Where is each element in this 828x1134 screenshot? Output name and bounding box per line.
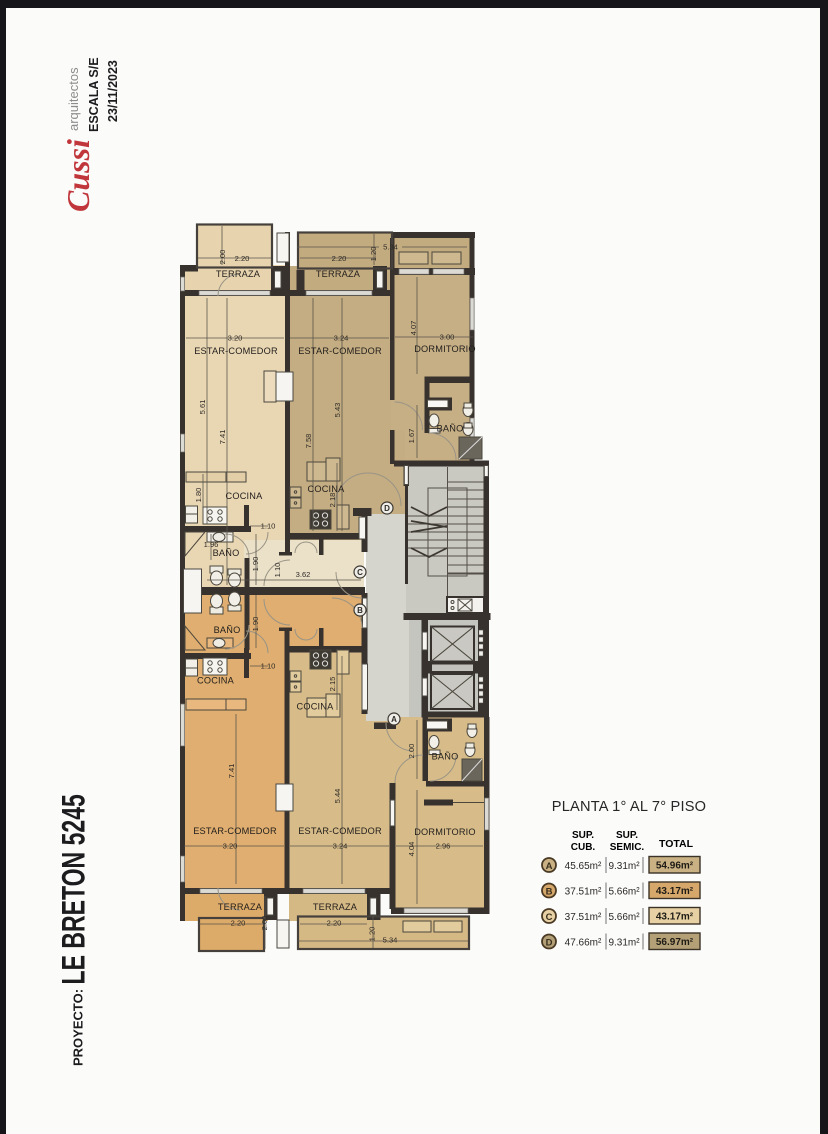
svg-text:47.66m²: 47.66m²	[565, 938, 602, 949]
svg-text:5.34: 5.34	[383, 243, 398, 252]
svg-text:C: C	[357, 568, 363, 577]
svg-text:54.96m²: 54.96m²	[656, 861, 694, 872]
svg-text:43.17m²: 43.17m²	[656, 886, 694, 897]
svg-text:43.17m²: 43.17m²	[656, 912, 694, 923]
svg-text:1.20: 1.20	[369, 247, 378, 262]
svg-text:5.66m²: 5.66m²	[608, 887, 640, 898]
svg-text:SEMIC.: SEMIC.	[610, 842, 645, 853]
svg-text:PLANTA 1° AL 7° PISO: PLANTA 1° AL 7° PISO	[552, 799, 706, 815]
svg-text:ESTAR-COMEDOR: ESTAR-COMEDOR	[298, 826, 382, 836]
svg-text:D: D	[546, 938, 553, 949]
svg-text:23/11/2023: 23/11/2023	[106, 60, 120, 122]
svg-text:45.65m²: 45.65m²	[565, 861, 602, 872]
svg-text:BAÑO: BAÑO	[432, 752, 459, 762]
svg-text:SUP.: SUP.	[616, 830, 638, 841]
svg-text:BAÑO: BAÑO	[213, 548, 240, 558]
svg-text:D: D	[384, 504, 390, 513]
svg-text:7.58: 7.58	[304, 434, 313, 449]
svg-text:5.43: 5.43	[333, 403, 342, 418]
svg-text:COCINA: COCINA	[297, 702, 335, 712]
svg-text:9.31m²: 9.31m²	[608, 938, 640, 949]
svg-text:2.96: 2.96	[436, 842, 451, 851]
svg-text:3.62: 3.62	[296, 570, 311, 579]
svg-text:TERRAZA: TERRAZA	[218, 902, 263, 912]
svg-text:3.24: 3.24	[334, 334, 349, 343]
svg-text:COCINA: COCINA	[197, 676, 235, 686]
svg-text:ESTAR-COMEDOR: ESTAR-COMEDOR	[194, 346, 278, 356]
svg-text:4.04: 4.04	[407, 842, 416, 857]
svg-text:SUP.: SUP.	[572, 830, 594, 841]
svg-text:A: A	[391, 715, 397, 724]
svg-text:TERRAZA: TERRAZA	[313, 902, 358, 912]
svg-text:2.20: 2.20	[235, 254, 250, 263]
svg-text:BAÑO: BAÑO	[214, 625, 241, 635]
svg-text:CUB.: CUB.	[571, 842, 596, 853]
svg-text:C: C	[546, 912, 553, 923]
svg-text:1.20: 1.20	[368, 927, 377, 942]
svg-text:TERRAZA: TERRAZA	[316, 269, 361, 279]
svg-text:PROYECTO:: PROYECTO:	[71, 989, 86, 1066]
svg-text:arquitectos: arquitectos	[66, 67, 81, 131]
svg-text:5.61: 5.61	[198, 400, 207, 415]
svg-text:5.34: 5.34	[383, 936, 398, 945]
svg-text:2.18: 2.18	[328, 493, 337, 508]
svg-text:ESTAR-COMEDOR: ESTAR-COMEDOR	[298, 346, 382, 356]
svg-text:3.00: 3.00	[440, 333, 455, 342]
svg-text:2.20: 2.20	[231, 919, 246, 928]
svg-text:2.20: 2.20	[332, 254, 347, 263]
svg-text:B: B	[546, 887, 553, 898]
svg-text:3.20: 3.20	[228, 334, 243, 343]
svg-text:4.07: 4.07	[409, 321, 418, 336]
svg-text:1.10: 1.10	[261, 522, 276, 531]
svg-text:56.97m²: 56.97m²	[656, 937, 694, 948]
svg-text:DORMITORIO: DORMITORIO	[414, 827, 476, 837]
svg-text:5.44: 5.44	[333, 789, 342, 804]
svg-text:DORMITORIO: DORMITORIO	[414, 344, 476, 354]
svg-text:A: A	[546, 861, 553, 872]
svg-text:37.51m²: 37.51m²	[565, 912, 602, 923]
svg-text:TERRAZA: TERRAZA	[216, 269, 261, 279]
svg-text:5.66m²: 5.66m²	[608, 912, 640, 923]
svg-text:2.00: 2.00	[407, 744, 416, 759]
svg-text:B: B	[357, 606, 363, 615]
svg-text:7.41: 7.41	[218, 430, 227, 445]
svg-text:TOTAL: TOTAL	[659, 838, 694, 850]
svg-text:Cussi: Cussi	[60, 139, 96, 212]
svg-text:1.80: 1.80	[194, 488, 203, 503]
svg-text:1.67: 1.67	[407, 429, 416, 444]
svg-text:BAÑO: BAÑO	[437, 424, 464, 434]
svg-text:1.10: 1.10	[261, 662, 276, 671]
svg-text:1.90: 1.90	[251, 557, 260, 572]
svg-text:2.00: 2.00	[218, 250, 227, 265]
svg-text:ESCALA S/E: ESCALA S/E	[87, 57, 101, 132]
svg-text:9.31m²: 9.31m²	[608, 861, 640, 872]
svg-text:3.20: 3.20	[223, 842, 238, 851]
svg-text:1.10: 1.10	[273, 563, 282, 578]
svg-text:3.24: 3.24	[333, 842, 348, 851]
svg-text:37.51m²: 37.51m²	[565, 887, 602, 898]
svg-text:7.41: 7.41	[227, 764, 236, 779]
svg-text:2.00: 2.00	[260, 916, 269, 931]
svg-text:LE BRETON 5245: LE BRETON 5245	[56, 794, 92, 984]
svg-text:2.20: 2.20	[327, 919, 342, 928]
svg-text:COCINA: COCINA	[308, 484, 346, 494]
svg-text:ESTAR-COMEDOR: ESTAR-COMEDOR	[193, 826, 277, 836]
svg-text:2.15: 2.15	[328, 677, 337, 692]
svg-text:COCINA: COCINA	[226, 491, 264, 501]
svg-text:1.90: 1.90	[251, 617, 260, 632]
